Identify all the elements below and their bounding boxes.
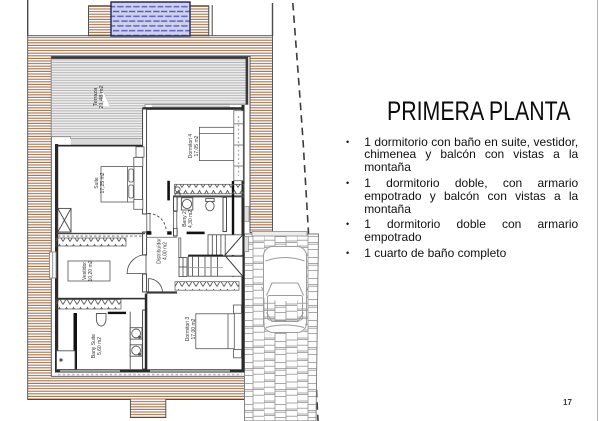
svg-text:21,48 m2: 21,48 m2 bbox=[99, 85, 105, 108]
svg-text:5,60 m2: 5,60 m2 bbox=[97, 337, 103, 355]
svg-text:4,30 m2: 4,30 m2 bbox=[188, 210, 194, 228]
svg-text:17,05 m2: 17,05 m2 bbox=[194, 135, 200, 156]
svg-text:17,25 m2: 17,25 m2 bbox=[100, 172, 106, 193]
svg-text:17,00 m2: 17,00 m2 bbox=[191, 318, 197, 339]
svg-text:10,20 m2: 10,20 m2 bbox=[88, 260, 94, 281]
svg-text:4,00 m2: 4,00 m2 bbox=[163, 242, 169, 260]
